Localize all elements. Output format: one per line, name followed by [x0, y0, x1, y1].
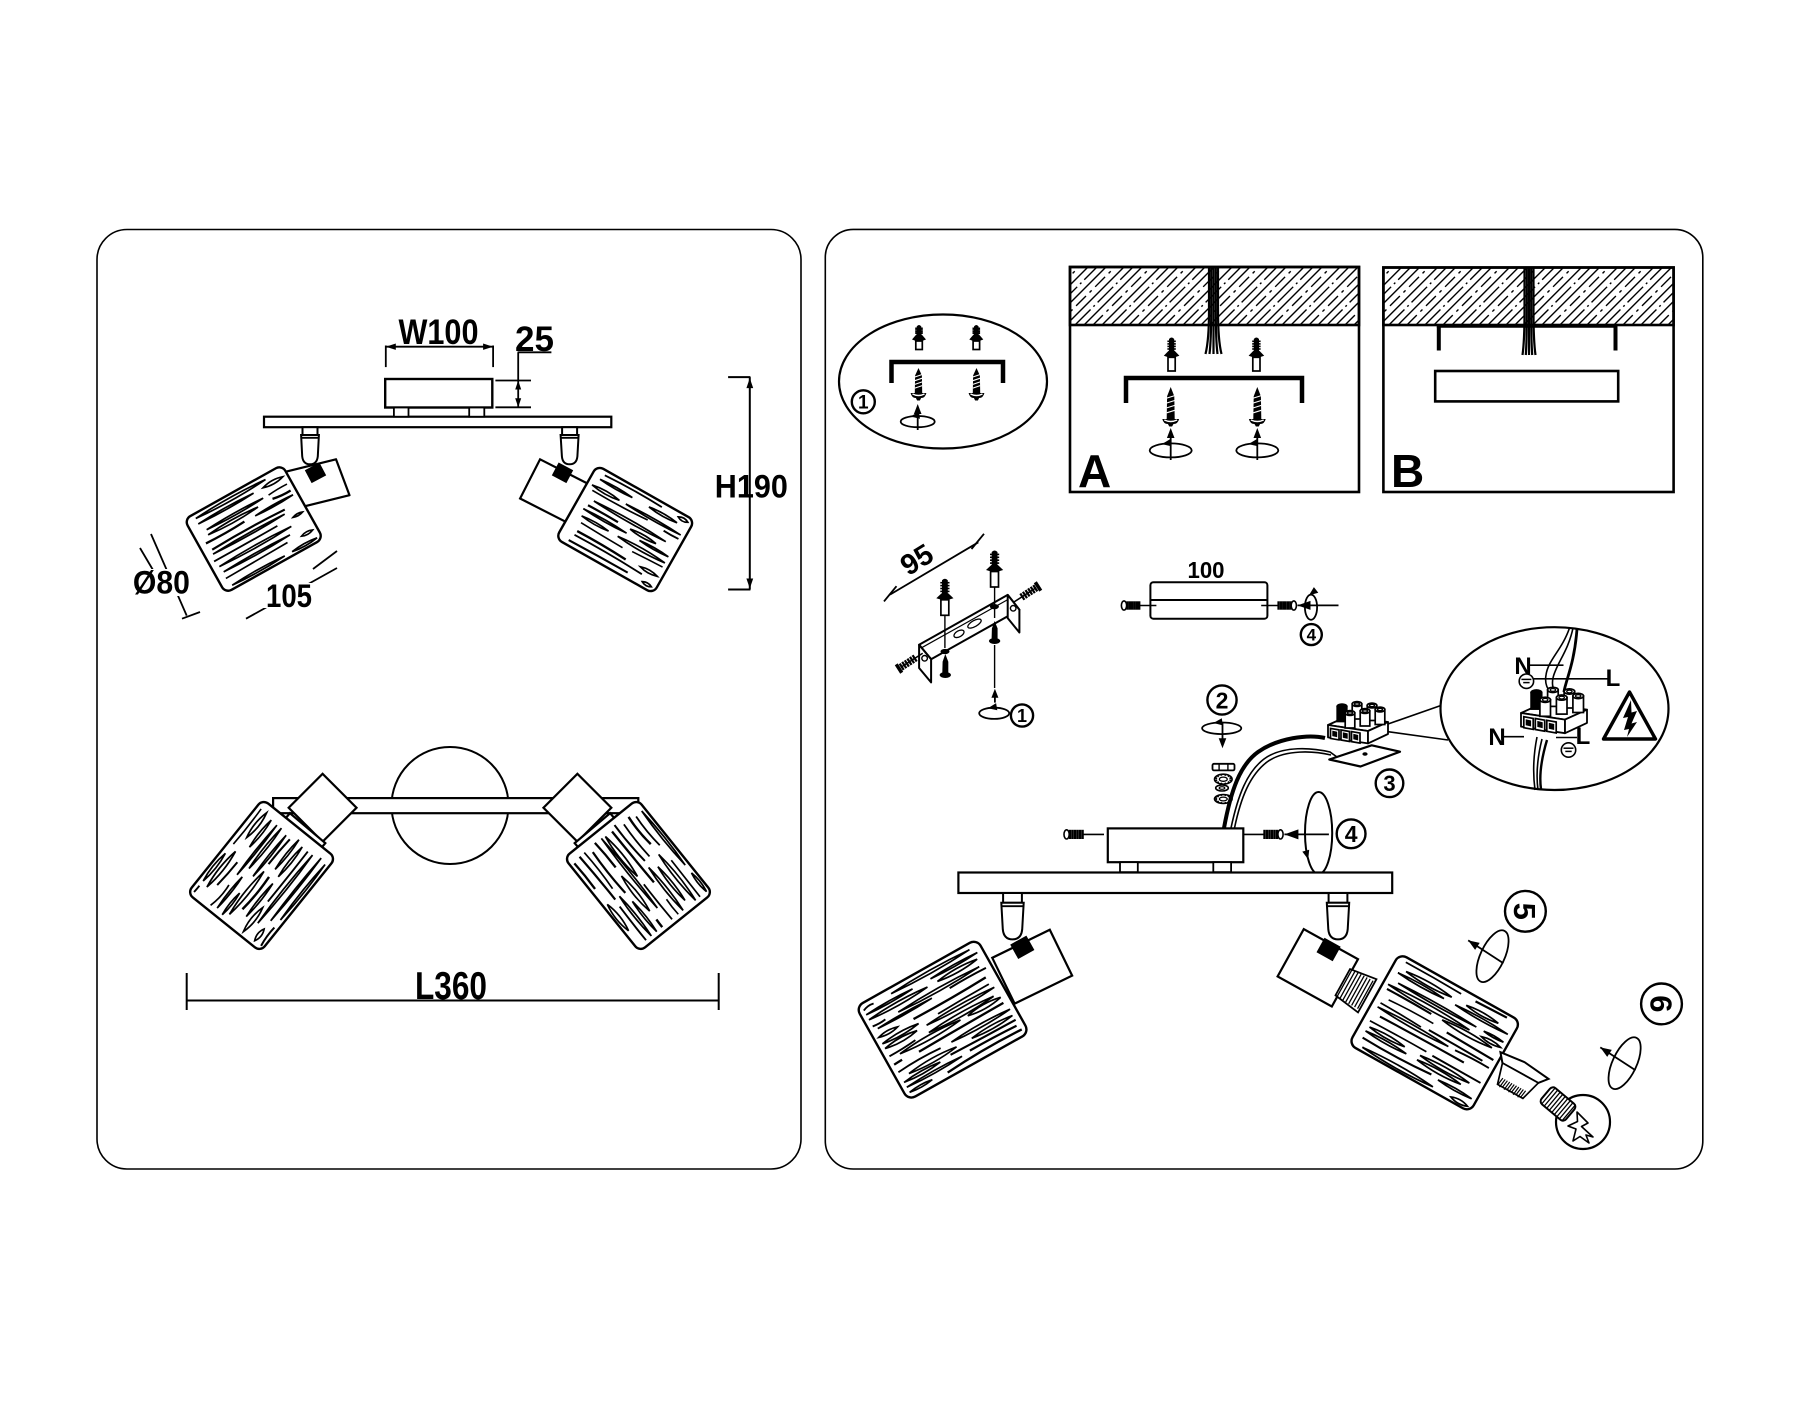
- svg-text:Ø80: Ø80: [133, 564, 190, 600]
- svg-text:H190: H190: [715, 469, 788, 505]
- svg-text:5: 5: [1507, 903, 1542, 920]
- svg-text:100: 100: [1188, 557, 1225, 583]
- svg-text:4: 4: [1307, 626, 1317, 645]
- svg-text:L: L: [1576, 723, 1591, 750]
- svg-text:2: 2: [1216, 687, 1229, 713]
- svg-text:1: 1: [1017, 706, 1027, 726]
- svg-text:1: 1: [858, 393, 869, 414]
- svg-text:6: 6: [1643, 995, 1678, 1012]
- svg-text:L360: L360: [415, 965, 487, 1008]
- svg-text:B: B: [1391, 445, 1424, 497]
- svg-text:W100: W100: [399, 313, 479, 352]
- svg-text:N: N: [1488, 724, 1505, 751]
- svg-text:L: L: [1606, 665, 1621, 692]
- svg-text:4: 4: [1345, 821, 1358, 847]
- svg-text:105: 105: [266, 578, 312, 614]
- svg-text:3: 3: [1383, 771, 1395, 796]
- svg-text:A: A: [1078, 445, 1111, 497]
